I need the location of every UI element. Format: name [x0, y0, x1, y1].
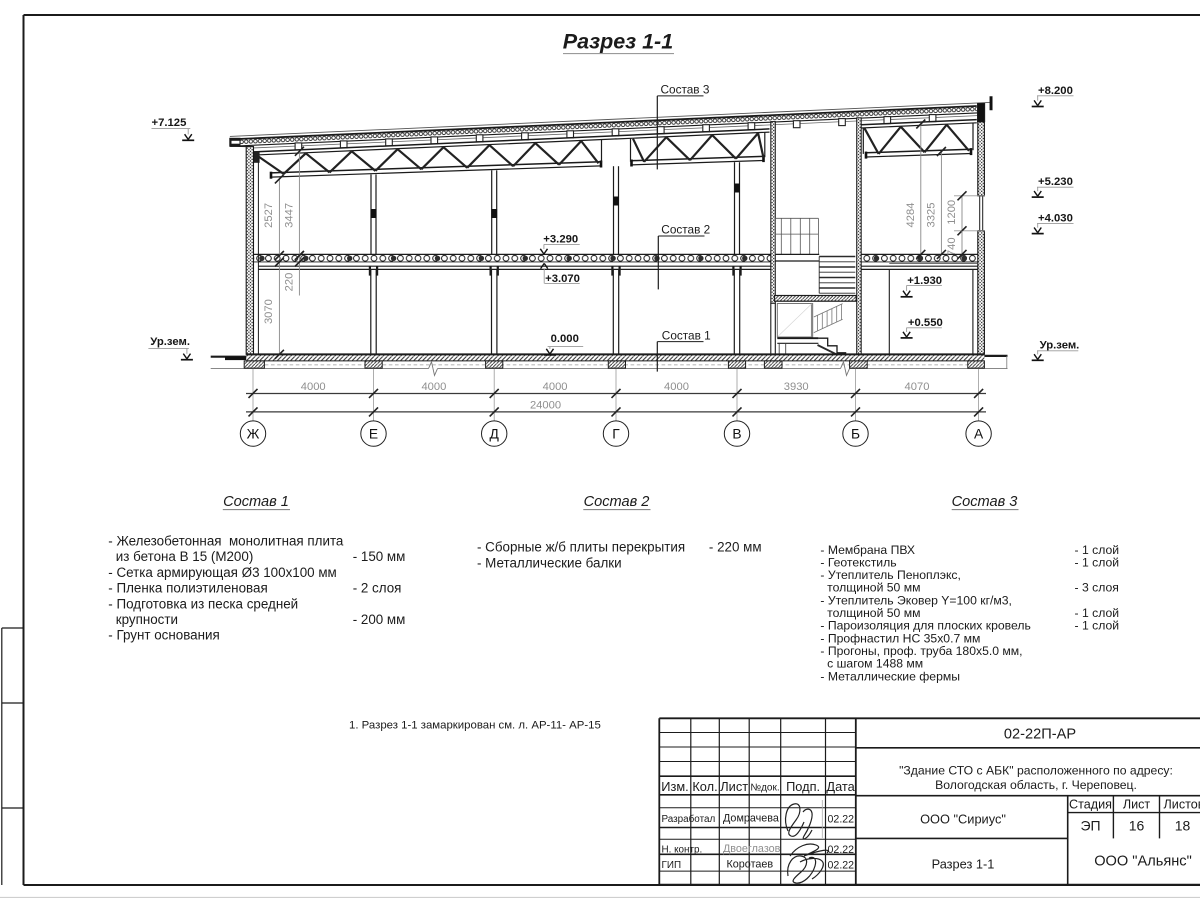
svg-text:Состав 3: Состав 3 — [952, 494, 1018, 510]
svg-text:+4.030: +4.030 — [1038, 213, 1073, 225]
svg-text:из бетона В 15 (М200): из бетона В 15 (М200) — [108, 549, 253, 564]
svg-text:3325: 3325 — [925, 203, 937, 228]
svg-text:Н. контр.: Н. контр. — [662, 844, 703, 855]
svg-text:1200: 1200 — [946, 200, 958, 225]
svg-text:Лист: Лист — [1123, 798, 1151, 812]
svg-text:Домрачева: Домрачева — [723, 813, 779, 825]
svg-text:+8.200: +8.200 — [1038, 85, 1073, 97]
svg-text:ООО "Сириус": ООО "Сириус" — [920, 812, 1006, 827]
svg-text:02-22П-АР: 02-22П-АР — [1004, 727, 1076, 743]
svg-text:Ж: Ж — [247, 427, 260, 442]
svg-text:Листов: Листов — [1164, 798, 1200, 812]
svg-text:24000: 24000 — [530, 400, 561, 412]
svg-text:Состав 1: Состав 1 — [223, 494, 289, 510]
svg-text:Состав 3: Состав 3 — [661, 83, 710, 97]
svg-text:- Пленка полиэтиленовая: - Пленка полиэтиленовая — [108, 581, 267, 596]
svg-text:4000: 4000 — [421, 381, 446, 393]
svg-text:+5.230: +5.230 — [1038, 176, 1073, 188]
svg-text:Б: Б — [851, 427, 860, 442]
svg-text:+7.125: +7.125 — [152, 117, 187, 129]
svg-text:Разрез 1-1: Разрез 1-1 — [932, 856, 995, 871]
svg-text:Ур.зем.: Ур.зем. — [1040, 340, 1080, 352]
svg-text:+3.290: +3.290 — [543, 234, 578, 246]
svg-text:02.22: 02.22 — [828, 814, 855, 826]
svg-text:4000: 4000 — [301, 381, 326, 393]
svg-text:Д: Д — [490, 427, 500, 442]
svg-text:- Металлические балки: - Металлические балки — [477, 555, 622, 570]
svg-text:4000: 4000 — [543, 381, 568, 393]
svg-text:2527: 2527 — [263, 203, 275, 228]
svg-text:- Подготовка из песка средней: - Подготовка из песка средней — [108, 596, 298, 611]
svg-text:В: В — [732, 427, 741, 442]
svg-text:- Железобетонная монолитная п: - Железобетонная монолитная плита — [108, 534, 344, 549]
svg-text:4000: 4000 — [664, 381, 689, 393]
svg-text:Подп.: Подп. — [786, 779, 820, 794]
svg-text:3070: 3070 — [263, 299, 275, 324]
svg-text:Состав 1: Состав 1 — [662, 328, 711, 342]
svg-text:3930: 3930 — [784, 381, 809, 393]
svg-text:4284: 4284 — [905, 203, 917, 228]
svg-text:А: А — [974, 427, 984, 442]
svg-text:ГИП: ГИП — [662, 860, 682, 871]
svg-text:220: 220 — [284, 273, 296, 292]
svg-text:16: 16 — [1129, 818, 1145, 834]
svg-text:18: 18 — [1175, 818, 1191, 834]
svg-text:3447: 3447 — [284, 203, 296, 228]
svg-text:Е: Е — [369, 427, 378, 442]
svg-text:Вологодская область, г. Черепо: Вологодская область, г. Череповец. — [935, 778, 1137, 792]
svg-text:- Металлические фермы: - Металлические фермы — [820, 669, 960, 683]
svg-text:Лист: Лист — [720, 779, 748, 794]
svg-text:- Сетка армирующая Ø3 100х100: - Сетка армирующая Ø3 100х100 мм — [108, 565, 336, 580]
svg-text:+0.550: +0.550 — [908, 317, 943, 329]
svg-text:02.22: 02.22 — [828, 844, 855, 856]
svg-text:Состав 2: Состав 2 — [661, 222, 710, 236]
svg-text:0.000: 0.000 — [551, 333, 579, 345]
svg-text:- 2 слоя: - 2 слоя — [353, 581, 402, 596]
svg-text:02.22: 02.22 — [828, 859, 855, 871]
svg-text:740: 740 — [946, 237, 958, 256]
svg-text:Кол.: Кол. — [692, 779, 717, 794]
svg-text:- 220 мм: - 220 мм — [709, 540, 762, 555]
svg-text:Разрез 1-1: Разрез 1-1 — [563, 30, 673, 54]
svg-text:- Сборные ж/б плиты перекрытия: - Сборные ж/б плиты перекрытия — [477, 540, 685, 555]
svg-text:- Грунт основания: - Грунт основания — [108, 628, 219, 643]
svg-text:№док.: №док. — [750, 782, 779, 793]
svg-text:1. Разрез 1-1 замаркирован см.: 1. Разрез 1-1 замаркирован см. л. АР-11-… — [349, 720, 601, 732]
svg-text:Дата: Дата — [826, 779, 855, 794]
svg-text:ООО "Альянс": ООО "Альянс" — [1094, 853, 1192, 869]
svg-text:Двоеглазов: Двоеглазов — [723, 843, 781, 855]
svg-text:"Здание СТО с АБК" расположенн: "Здание СТО с АБК" расположенного по адр… — [899, 764, 1173, 778]
svg-text:Г: Г — [612, 427, 620, 442]
svg-text:Ур.зем.: Ур.зем. — [150, 336, 190, 348]
svg-text:4070: 4070 — [905, 381, 930, 393]
svg-text:Состав 2: Состав 2 — [584, 494, 650, 510]
svg-text:ЭП: ЭП — [1080, 818, 1100, 834]
svg-text:- 1 слой: - 1 слой — [1075, 619, 1120, 633]
svg-text:- 200 мм: - 200 мм — [353, 612, 406, 627]
svg-text:- 150 мм: - 150 мм — [353, 549, 406, 564]
svg-text:Коротаев: Коротаев — [727, 859, 774, 871]
svg-text:Разработал: Разработал — [662, 814, 716, 825]
svg-text:крупности: крупности — [108, 612, 178, 627]
svg-text:- 1 слой: - 1 слой — [1075, 555, 1120, 569]
svg-text:Изм.: Изм. — [661, 779, 688, 794]
svg-text:- 3 слоя: - 3 слоя — [1075, 581, 1119, 595]
svg-text:Стадия: Стадия — [1069, 798, 1112, 812]
